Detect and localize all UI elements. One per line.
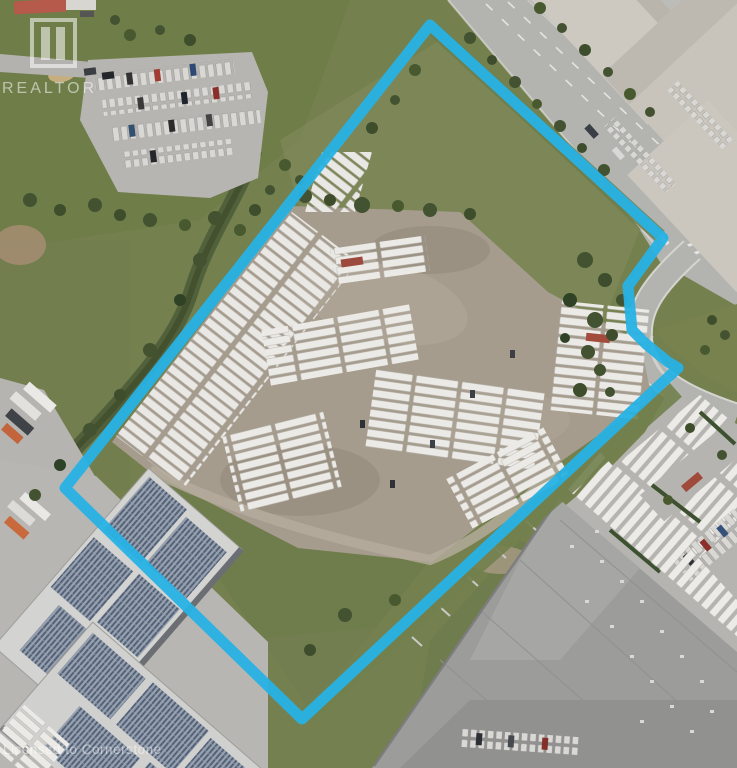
license-watermark-text: Licensed to Cornerstone bbox=[3, 742, 162, 757]
realtor-logo-bar bbox=[56, 27, 65, 60]
realtor-watermark-text: REALTOR bbox=[2, 80, 97, 98]
realtor-logo-icon bbox=[30, 18, 77, 68]
aerial-photo bbox=[0, 0, 737, 768]
realtor-logo-bar bbox=[41, 27, 50, 60]
screenshot-root: REALTOR Licensed to Cornerstone bbox=[0, 0, 737, 768]
